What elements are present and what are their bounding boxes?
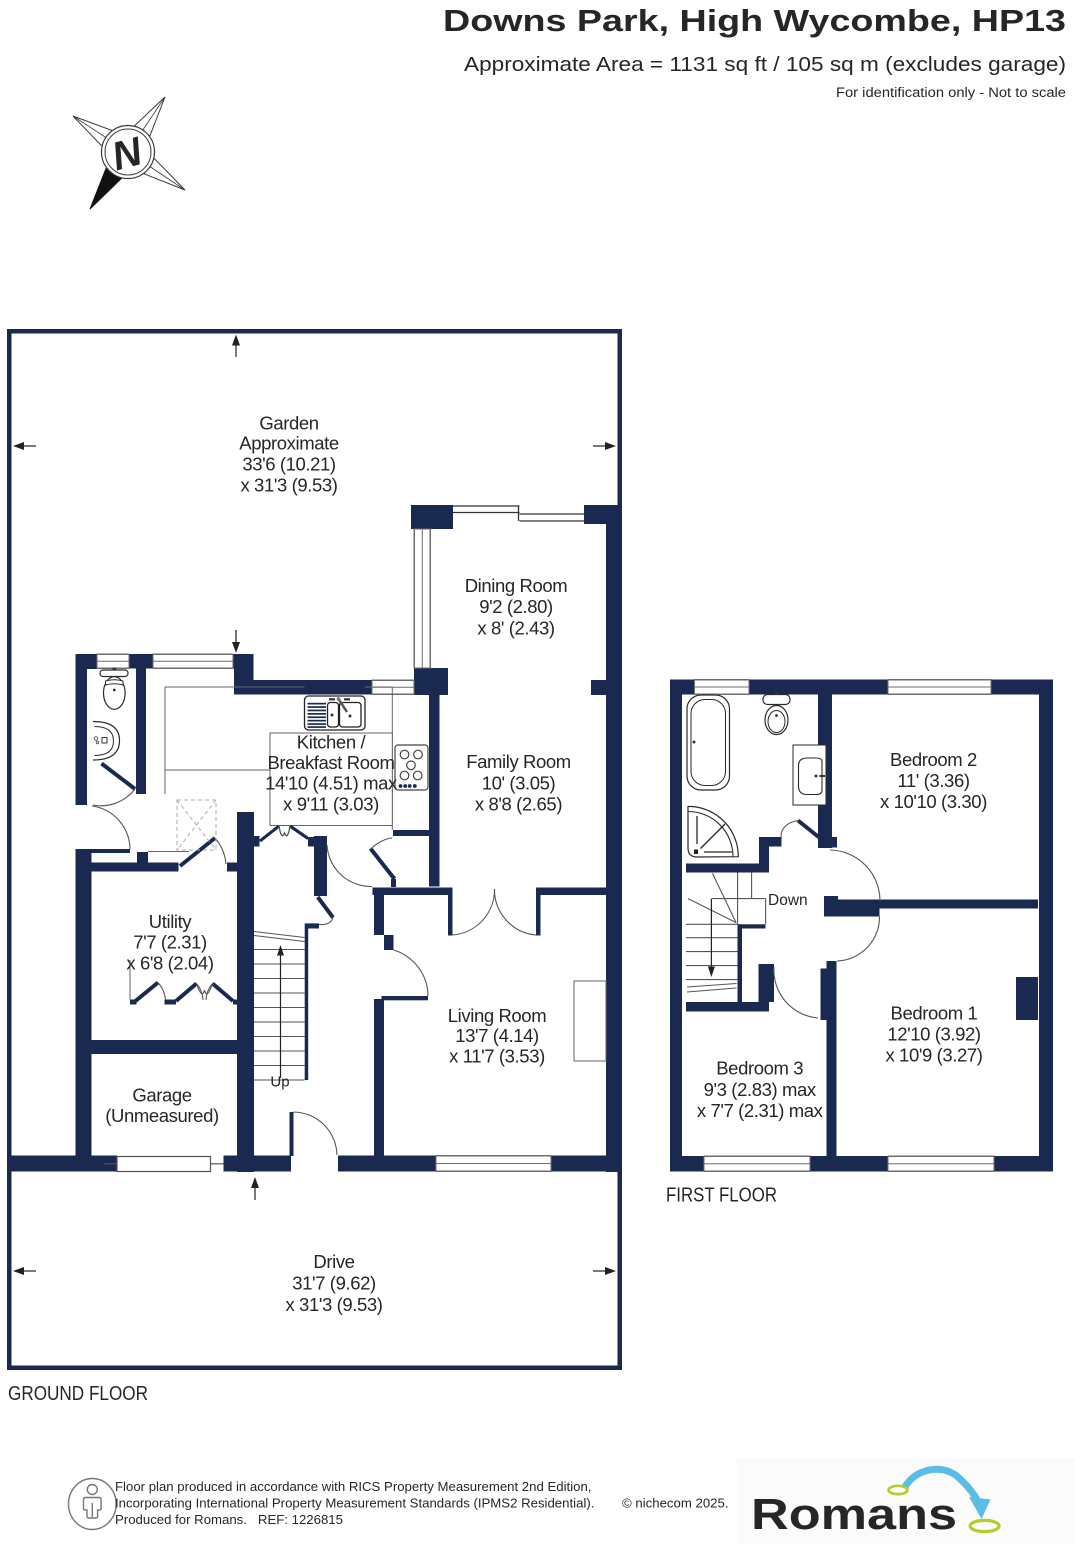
- svg-text:Incorporating International Pr: Incorporating International Property Mea…: [115, 1496, 594, 1511]
- svg-text:Bedroom 3: Bedroom 3: [716, 1058, 803, 1079]
- svg-text:Breakfast Room: Breakfast Room: [267, 752, 394, 773]
- svg-text:Bedroom 1: Bedroom 1: [891, 1003, 978, 1024]
- svg-text:© nichecom 2025.: © nichecom 2025.: [622, 1496, 729, 1511]
- svg-text:12'10 (3.92): 12'10 (3.92): [887, 1023, 981, 1044]
- svg-text:31'7 (9.62): 31'7 (9.62): [292, 1272, 376, 1293]
- svg-text:Family Room: Family Room: [466, 751, 571, 772]
- svg-text:Garden: Garden: [259, 413, 318, 434]
- svg-text:x 6'8 (2.04): x 6'8 (2.04): [126, 952, 213, 973]
- svg-text:Down: Down: [768, 892, 808, 909]
- svg-text:Produced for Romans. REF: 12: Produced for Romans. REF: 1226815: [115, 1512, 343, 1527]
- svg-text:Utility: Utility: [149, 911, 193, 932]
- svg-text:9'3 (2.83) max: 9'3 (2.83) max: [704, 1079, 817, 1100]
- svg-text:Dining Room: Dining Room: [465, 575, 568, 596]
- svg-text:x 8' (2.43): x 8' (2.43): [477, 618, 555, 639]
- svg-text:x 10'10 (3.30): x 10'10 (3.30): [880, 791, 987, 812]
- svg-text:(Unmeasured): (Unmeasured): [105, 1105, 219, 1126]
- svg-text:x 9'11 (3.03): x 9'11 (3.03): [283, 793, 379, 814]
- svg-text:7'7 (2.31): 7'7 (2.31): [133, 932, 207, 953]
- svg-text:13'7 (4.14): 13'7 (4.14): [455, 1025, 539, 1046]
- svg-text:Downs Park, High Wycombe, HP13: Downs Park, High Wycombe, HP13: [443, 3, 1066, 38]
- svg-text:Romans: Romans: [751, 1490, 957, 1539]
- svg-text:9'2 (2.80): 9'2 (2.80): [479, 596, 553, 617]
- svg-text:x 10'9 (3.27): x 10'9 (3.27): [885, 1045, 982, 1066]
- svg-text:10' (3.05): 10' (3.05): [482, 772, 556, 793]
- svg-text:Kitchen /: Kitchen /: [297, 732, 367, 753]
- svg-text:x 8'8 (2.65): x 8'8 (2.65): [475, 794, 562, 815]
- svg-text:GROUND FLOOR: GROUND FLOOR: [8, 1382, 148, 1405]
- svg-text:Floor plan produced in accorda: Floor plan produced in accordance with R…: [115, 1479, 591, 1494]
- svg-text:Approximate: Approximate: [239, 433, 339, 454]
- svg-text:Approximate Area = 1131 sq ft: Approximate Area = 1131 sq ft / 105 sq m…: [464, 53, 1066, 76]
- svg-text:11' (3.36): 11' (3.36): [897, 770, 969, 791]
- svg-text:Bedroom 2: Bedroom 2: [890, 749, 977, 770]
- svg-text:Drive: Drive: [313, 1251, 354, 1272]
- svg-text:For identification only - Not: For identification only - Not to scale: [836, 85, 1066, 100]
- svg-text:Garage: Garage: [132, 1084, 191, 1105]
- svg-text:x 31'3 (9.53): x 31'3 (9.53): [240, 474, 337, 495]
- svg-text:x 11'7 (3.53): x 11'7 (3.53): [449, 1046, 545, 1067]
- svg-text:33'6 (10.21): 33'6 (10.21): [242, 454, 336, 475]
- svg-text:Up: Up: [270, 1074, 289, 1091]
- svg-text:x 7'7 (2.31) max: x 7'7 (2.31) max: [697, 1100, 824, 1121]
- svg-text:14'10 (4.51) max: 14'10 (4.51) max: [265, 773, 398, 794]
- svg-text:FIRST FLOOR: FIRST FLOOR: [666, 1184, 777, 1207]
- svg-text:x 31'3 (9.53): x 31'3 (9.53): [285, 1294, 382, 1315]
- svg-text:Living Room: Living Room: [448, 1005, 546, 1026]
